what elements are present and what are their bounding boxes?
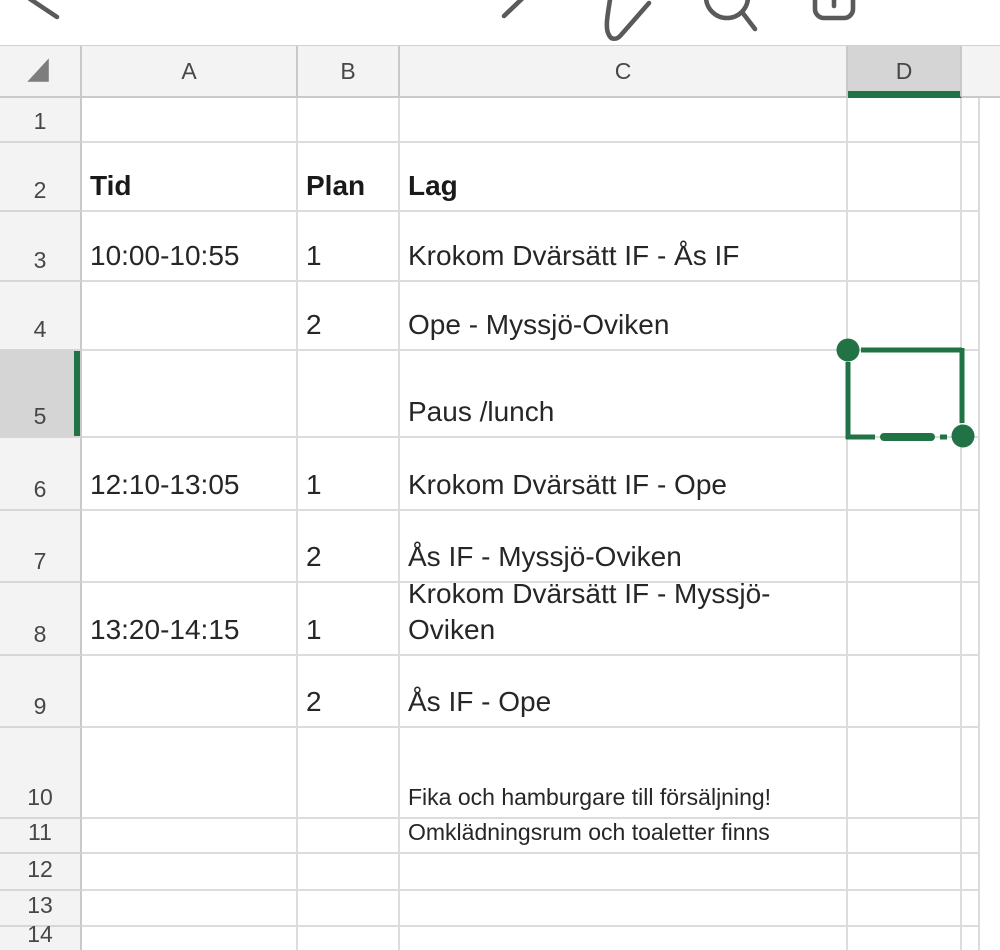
cell-D8[interactable] (848, 583, 962, 656)
cell-A14[interactable] (82, 927, 298, 950)
cell-D14[interactable] (848, 927, 962, 950)
row-10: 10 Fika och hamburgare till försäljning! (0, 728, 1000, 819)
cell-A12[interactable] (82, 854, 298, 891)
row-header-1[interactable]: 1 (0, 98, 82, 143)
cell-E3[interactable] (962, 212, 980, 282)
cell-text: Krokom Dvärsätt IF - Ås IF (408, 238, 739, 274)
back-icon[interactable] (30, 0, 57, 17)
row-4: 4 2 Ope - Myssjö-Oviken (0, 282, 1000, 351)
column-header-A[interactable]: A (82, 46, 298, 98)
cell-B4[interactable]: 2 (298, 282, 400, 351)
cell-text: 1 (306, 238, 322, 274)
selected-row-accent (74, 351, 80, 436)
cell-text: 13:20-14:15 (90, 612, 239, 648)
row-7: 7 2 Ås IF - Myssjö-Oviken (0, 511, 1000, 583)
cell-E10[interactable] (962, 728, 980, 819)
cell-A1[interactable] (82, 98, 298, 143)
cell-D12[interactable] (848, 854, 962, 891)
cell-text: Omklädningsrum och toaletter finns (408, 818, 770, 847)
column-label: C (615, 58, 632, 85)
cell-text: Ås IF - Ope (408, 684, 551, 720)
cell-D9[interactable] (848, 656, 962, 728)
cell-C9[interactable]: Ås IF - Ope (400, 656, 848, 728)
cell-C8[interactable]: Krokom Dvärsätt IF - Myssjö-Oviken (400, 583, 848, 656)
cell-D11[interactable] (848, 819, 962, 854)
cell-C5[interactable]: Paus /lunch (400, 351, 848, 438)
cell-D6[interactable] (848, 438, 962, 511)
cell-text: 2 (306, 684, 322, 720)
column-label: D (896, 58, 913, 85)
row-number: 6 (34, 476, 47, 503)
row-3: 3 10:00-10:55 1 Krokom Dvärsätt IF - Ås … (0, 212, 1000, 282)
cell-text: Ope - Myssjö-Oviken (408, 307, 669, 343)
cell-C11[interactable]: Omklädningsrum och toaletter finns (400, 819, 848, 854)
cell-text: 2 (306, 307, 322, 343)
toolbar-icons (0, 0, 1000, 45)
row-header-10[interactable]: 10 (0, 728, 82, 819)
edit-pen-icon[interactable] (607, 0, 649, 39)
cell-D7[interactable] (848, 511, 962, 583)
selected-column-accent (848, 91, 960, 96)
cell-A2[interactable]: Tid (82, 143, 298, 212)
cell-text: Plan (306, 168, 365, 204)
cell-C12[interactable] (400, 854, 848, 891)
cell-D3[interactable] (848, 212, 962, 282)
search-icon[interactable] (706, 0, 755, 29)
row-1: 1 (0, 98, 1000, 143)
row-number: 3 (34, 247, 47, 274)
cell-C1[interactable] (400, 98, 848, 143)
row-number: 11 (28, 819, 52, 846)
cell-text: 12:10-13:05 (90, 467, 239, 503)
row-6: 6 12:10-13:05 1 Krokom Dvärsätt IF - Ope (0, 438, 1000, 511)
cell-E8[interactable] (962, 583, 980, 656)
cell-text: Tid (90, 168, 131, 204)
cell-text: Fika och hamburgare till försäljning! (408, 783, 771, 812)
row-header-5-selected[interactable]: 5 (0, 351, 82, 438)
cell-B14[interactable] (298, 927, 400, 950)
cell-E6[interactable] (962, 438, 980, 511)
cell-E13[interactable] (962, 891, 980, 927)
cell-B8[interactable]: 1 (298, 583, 400, 656)
cell-B13[interactable] (298, 891, 400, 927)
row-14: 14 (0, 927, 1000, 950)
cell-C4[interactable]: Ope - Myssjö-Oviken (400, 282, 848, 351)
share-icon[interactable] (815, 0, 853, 18)
row-number: 7 (34, 548, 47, 575)
cell-B3[interactable]: 1 (298, 212, 400, 282)
column-header-B[interactable]: B (298, 46, 400, 98)
cell-A10[interactable] (82, 728, 298, 819)
cell-E12[interactable] (962, 854, 980, 891)
cell-B11[interactable] (298, 819, 400, 854)
cell-E2[interactable] (962, 143, 980, 212)
cell-E4[interactable] (962, 282, 980, 351)
cell-A8[interactable]: 13:20-14:15 (82, 583, 298, 656)
cell-C2[interactable]: Lag (400, 143, 848, 212)
row-number: 1 (34, 108, 47, 135)
row-header-2[interactable]: 2 (0, 143, 82, 212)
row-header-11[interactable]: 11 (0, 819, 82, 854)
cell-E5[interactable] (962, 351, 980, 438)
row-header-9[interactable]: 9 (0, 656, 82, 728)
row-header-12[interactable]: 12 (0, 854, 82, 891)
cell-A9[interactable] (82, 656, 298, 728)
cell-B2[interactable]: Plan (298, 143, 400, 212)
cell-A7[interactable] (82, 511, 298, 583)
redo-icon[interactable] (504, 0, 527, 16)
cell-text: Krokom Dvärsätt IF - Myssjö-Oviken (408, 576, 838, 648)
row-number: 2 (34, 177, 47, 204)
cell-C14[interactable] (400, 927, 848, 950)
cell-C3[interactable]: Krokom Dvärsätt IF - Ås IF (400, 212, 848, 282)
row-8: 8 13:20-14:15 1 Krokom Dvärsätt IF - Mys… (0, 583, 1000, 656)
cell-text: Lag (408, 168, 458, 204)
spreadsheet-grid: A B C D 1 2 Tid Plan Lag (0, 45, 1000, 950)
cell-B1[interactable] (298, 98, 400, 143)
cell-text: 1 (306, 612, 322, 648)
row-number: 13 (27, 892, 53, 919)
column-header-C[interactable]: C (400, 46, 848, 98)
row-header-4[interactable]: 4 (0, 282, 82, 351)
cell-D1[interactable] (848, 98, 962, 143)
row-2: 2 Tid Plan Lag (0, 143, 1000, 212)
cell-B5[interactable] (298, 351, 400, 438)
row-number: 8 (34, 621, 47, 648)
cell-text: 2 (306, 539, 322, 575)
cell-B7[interactable]: 2 (298, 511, 400, 583)
column-label: B (340, 58, 355, 85)
cell-text: 10:00-10:55 (90, 238, 239, 274)
row-header-14[interactable]: 14 (0, 927, 82, 950)
cell-E9[interactable] (962, 656, 980, 728)
row-number: 10 (27, 784, 53, 811)
row-number: 4 (34, 316, 47, 343)
row-number: 14 (27, 921, 53, 948)
row-header-3[interactable]: 3 (0, 212, 82, 282)
cell-D13[interactable] (848, 891, 962, 927)
row-number: 5 (34, 403, 47, 430)
cell-D5-selected[interactable] (848, 351, 962, 438)
row-header-7[interactable]: 7 (0, 511, 82, 583)
cell-D10[interactable] (848, 728, 962, 819)
cell-B9[interactable]: 2 (298, 656, 400, 728)
row-13: 13 (0, 891, 1000, 927)
cell-B10[interactable] (298, 728, 400, 819)
cell-D4[interactable] (848, 282, 962, 351)
select-all-corner[interactable] (0, 46, 82, 98)
excel-mobile-screen: A B C D 1 2 Tid Plan Lag (0, 0, 1000, 950)
cell-E1[interactable] (962, 98, 980, 143)
cell-B6[interactable]: 1 (298, 438, 400, 511)
cell-B12[interactable] (298, 854, 400, 891)
cell-A13[interactable] (82, 891, 298, 927)
cell-text: 1 (306, 467, 322, 503)
cell-text: Krokom Dvärsätt IF - Ope (408, 467, 727, 503)
row-header-6[interactable]: 6 (0, 438, 82, 511)
select-all-triangle-icon (0, 45, 80, 97)
row-9: 9 2 Ås IF - Ope (0, 656, 1000, 728)
cell-A4[interactable] (82, 282, 298, 351)
row-12: 12 (0, 854, 1000, 891)
row-5: 5 Paus /lunch (0, 351, 1000, 438)
cell-text: Paus /lunch (408, 394, 554, 430)
cell-A5[interactable] (82, 351, 298, 438)
row-11: 11 Omklädningsrum och toaletter finns (0, 819, 1000, 854)
row-number: 12 (27, 856, 53, 883)
cell-E11[interactable] (962, 819, 980, 854)
column-label: A (181, 58, 196, 85)
cell-E14[interactable] (962, 927, 980, 950)
column-header-D-selected[interactable]: D (848, 46, 962, 98)
row-header-8[interactable]: 8 (0, 583, 82, 656)
cell-A11[interactable] (82, 819, 298, 854)
toolbar (0, 0, 1000, 45)
column-header-row: A B C D (0, 45, 1000, 98)
cell-text: Ås IF - Myssjö-Oviken (408, 539, 682, 575)
cell-C7[interactable]: Ås IF - Myssjö-Oviken (400, 511, 848, 583)
cell-A6[interactable]: 12:10-13:05 (82, 438, 298, 511)
cell-C6[interactable]: Krokom Dvärsätt IF - Ope (400, 438, 848, 511)
cell-D2[interactable] (848, 143, 962, 212)
cell-E7[interactable] (962, 511, 980, 583)
cell-C10[interactable]: Fika och hamburgare till försäljning! (400, 728, 848, 819)
cell-A3[interactable]: 10:00-10:55 (82, 212, 298, 282)
cell-C13[interactable] (400, 891, 848, 927)
column-header-E-sliver[interactable] (962, 46, 1000, 98)
row-number: 9 (34, 693, 47, 720)
